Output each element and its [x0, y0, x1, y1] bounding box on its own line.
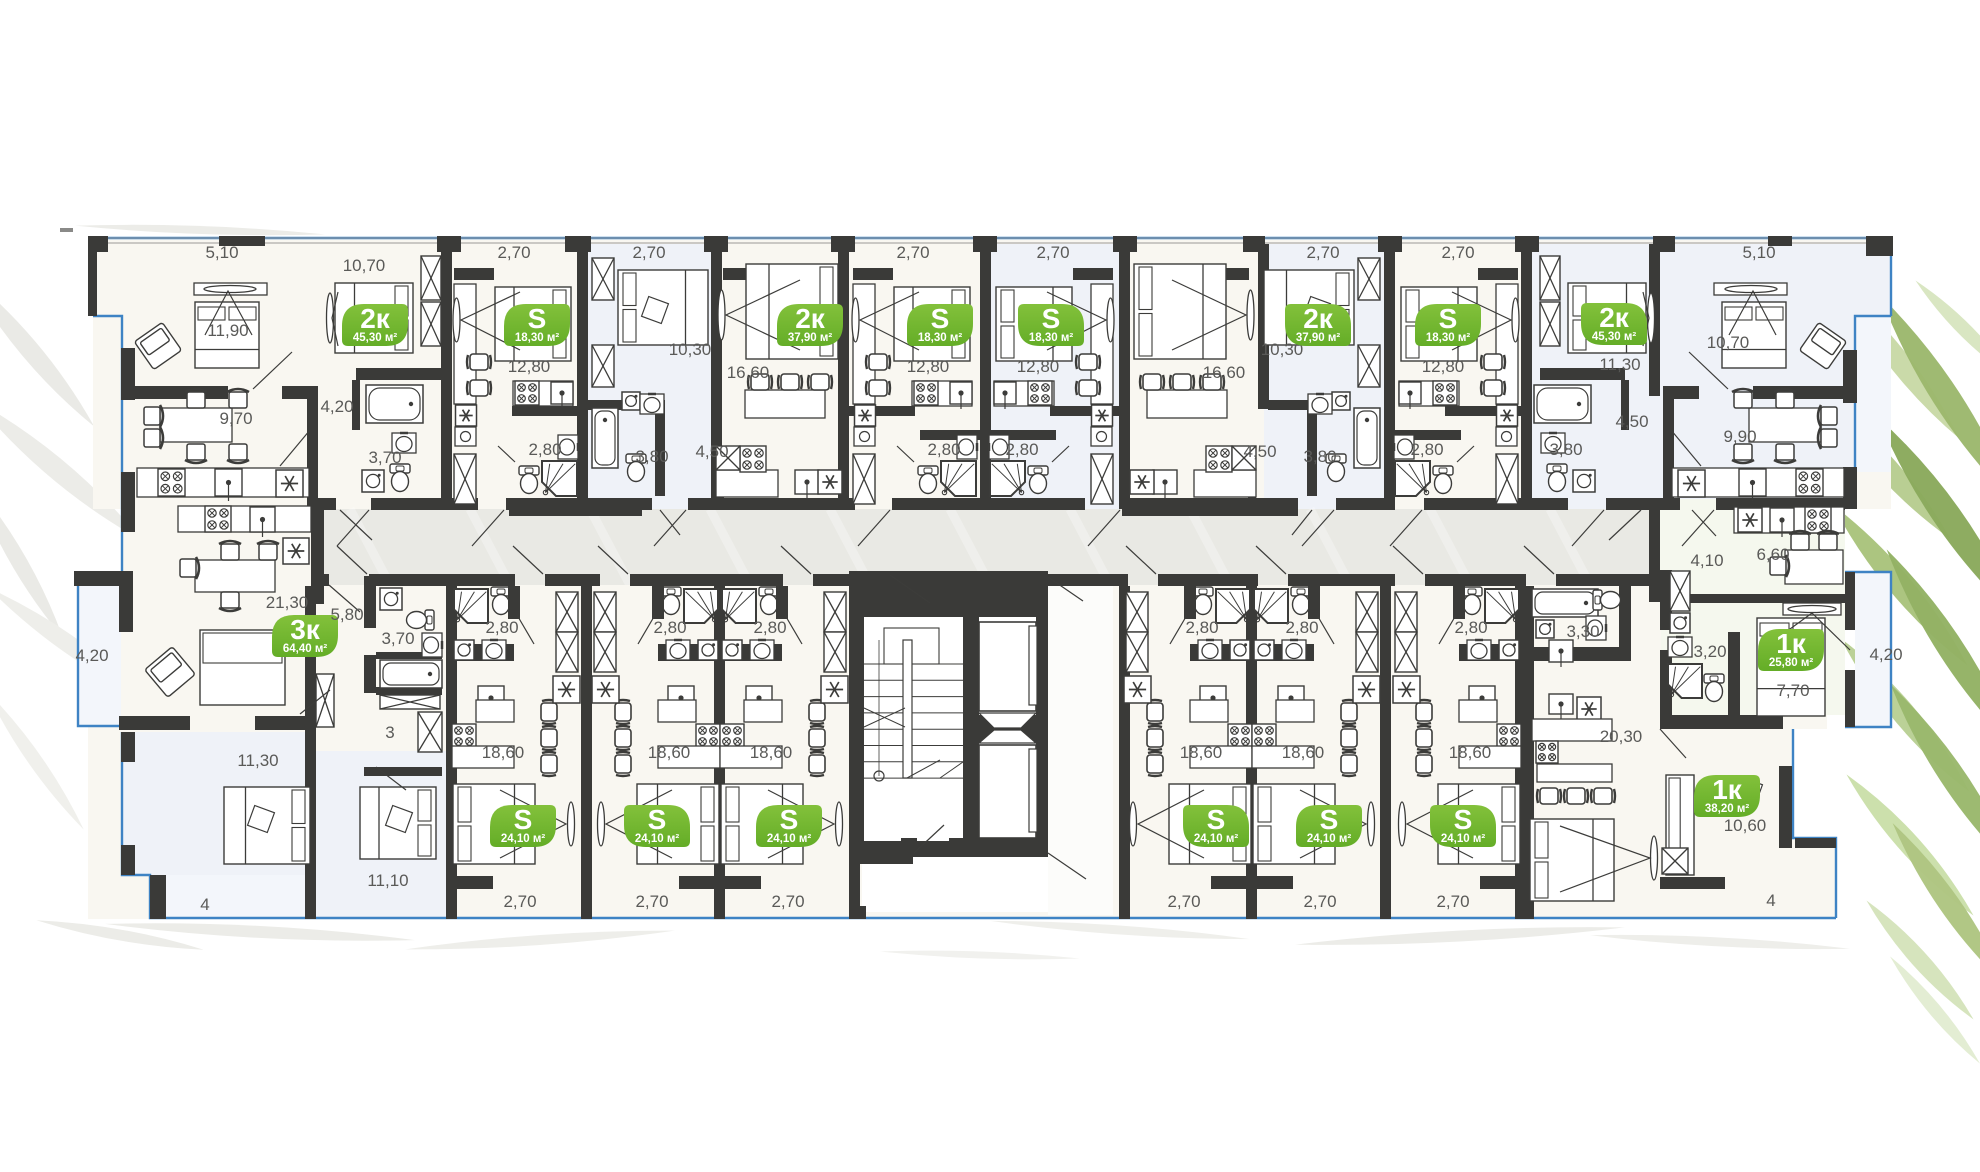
svg-text:2,70: 2,70 — [1167, 892, 1200, 911]
svg-text:4,10: 4,10 — [1690, 551, 1723, 570]
svg-text:12,80: 12,80 — [907, 357, 950, 376]
svg-text:11,10: 11,10 — [367, 871, 408, 890]
svg-text:2,70: 2,70 — [896, 243, 929, 262]
svg-text:10,60: 10,60 — [1724, 816, 1767, 835]
svg-text:12,80: 12,80 — [1422, 357, 1465, 376]
svg-text:2,80: 2,80 — [653, 618, 686, 637]
svg-text:37,90 м²: 37,90 м² — [1296, 332, 1340, 344]
svg-text:18,30 м²: 18,30 м² — [1029, 332, 1073, 344]
svg-text:2,80: 2,80 — [1005, 440, 1038, 459]
svg-text:2,70: 2,70 — [1441, 243, 1474, 262]
svg-text:24,10 м²: 24,10 м² — [1307, 833, 1351, 845]
svg-text:4,20: 4,20 — [75, 646, 108, 665]
svg-text:21,30: 21,30 — [266, 593, 309, 612]
svg-text:2,70: 2,70 — [503, 892, 536, 911]
svg-text:6,60: 6,60 — [1756, 545, 1789, 564]
svg-text:2,80: 2,80 — [1410, 440, 1443, 459]
svg-text:24,10 м²: 24,10 м² — [635, 833, 679, 845]
svg-text:45,30 м²: 45,30 м² — [1592, 331, 1636, 343]
svg-text:S: S — [528, 303, 547, 334]
svg-text:11,90: 11,90 — [207, 321, 248, 340]
svg-text:64,40 м²: 64,40 м² — [283, 643, 327, 655]
svg-text:3: 3 — [385, 723, 394, 742]
svg-text:3к: 3к — [290, 614, 321, 645]
svg-text:3,20: 3,20 — [1693, 642, 1726, 661]
svg-text:4: 4 — [200, 895, 209, 914]
svg-text:37,90 м²: 37,90 м² — [788, 332, 832, 344]
svg-text:2,80: 2,80 — [1185, 618, 1218, 637]
svg-text:18,60: 18,60 — [1180, 743, 1223, 762]
svg-text:2к: 2к — [795, 303, 826, 334]
svg-text:24,10 м²: 24,10 м² — [501, 833, 545, 845]
svg-text:4,20: 4,20 — [320, 397, 353, 416]
svg-text:S: S — [1320, 804, 1339, 835]
svg-text:38,20 м²: 38,20 м² — [1705, 803, 1749, 815]
svg-text:S: S — [1207, 804, 1226, 835]
svg-text:18,60: 18,60 — [648, 743, 691, 762]
svg-text:12,80: 12,80 — [508, 357, 551, 376]
svg-text:4,50: 4,50 — [1615, 412, 1648, 431]
svg-text:S: S — [514, 804, 533, 835]
svg-text:2,70: 2,70 — [497, 243, 530, 262]
svg-text:2,70: 2,70 — [1303, 892, 1336, 911]
svg-text:S: S — [931, 303, 950, 334]
svg-text:2к: 2к — [1599, 302, 1630, 333]
svg-text:24,10 м²: 24,10 м² — [1441, 833, 1485, 845]
svg-text:3,70: 3,70 — [368, 448, 401, 467]
svg-text:3,80: 3,80 — [1303, 447, 1336, 466]
svg-text:3,80: 3,80 — [1549, 440, 1582, 459]
svg-text:12,80: 12,80 — [1017, 357, 1060, 376]
svg-text:2,70: 2,70 — [1036, 243, 1069, 262]
svg-text:2,70: 2,70 — [632, 243, 665, 262]
svg-text:3,70: 3,70 — [381, 629, 414, 648]
svg-text:45,30 м²: 45,30 м² — [353, 332, 397, 344]
svg-text:2к: 2к — [360, 303, 391, 334]
svg-text:S: S — [648, 804, 667, 835]
svg-text:2,80: 2,80 — [528, 440, 561, 459]
svg-text:11,30: 11,30 — [1599, 355, 1640, 374]
svg-text:18,60: 18,60 — [750, 743, 793, 762]
svg-text:10,70: 10,70 — [1707, 333, 1750, 352]
svg-text:1к: 1к — [1776, 628, 1807, 659]
svg-text:11,30: 11,30 — [237, 751, 278, 770]
svg-text:2,70: 2,70 — [1436, 892, 1469, 911]
svg-text:3,30: 3,30 — [1566, 622, 1599, 641]
svg-text:2,80: 2,80 — [927, 440, 960, 459]
svg-text:18,60: 18,60 — [1282, 743, 1325, 762]
svg-text:2,80: 2,80 — [753, 618, 786, 637]
svg-text:1к: 1к — [1712, 774, 1743, 805]
svg-text:18,30 м²: 18,30 м² — [918, 332, 962, 344]
svg-text:S: S — [1454, 804, 1473, 835]
svg-text:24,10 м²: 24,10 м² — [767, 833, 811, 845]
svg-text:9,70: 9,70 — [219, 409, 252, 428]
svg-text:4,50: 4,50 — [1243, 442, 1276, 461]
svg-text:4,50: 4,50 — [695, 442, 728, 461]
svg-text:16,60: 16,60 — [1203, 363, 1246, 382]
svg-text:5,10: 5,10 — [1742, 243, 1775, 262]
svg-text:3,80: 3,80 — [635, 447, 668, 466]
svg-text:10,30: 10,30 — [669, 340, 712, 359]
svg-text:2,70: 2,70 — [635, 892, 668, 911]
svg-text:4: 4 — [1766, 891, 1775, 910]
svg-text:2,80: 2,80 — [485, 618, 518, 637]
svg-text:S: S — [1042, 303, 1061, 334]
svg-text:2,70: 2,70 — [771, 892, 804, 911]
svg-text:2,80: 2,80 — [1285, 618, 1318, 637]
svg-text:4,20: 4,20 — [1869, 645, 1902, 664]
svg-text:25,80 м²: 25,80 м² — [1769, 657, 1813, 669]
svg-text:S: S — [1439, 303, 1458, 334]
svg-text:2,70: 2,70 — [1306, 243, 1339, 262]
svg-text:5,80: 5,80 — [330, 605, 363, 624]
svg-text:18,30 м²: 18,30 м² — [1426, 332, 1470, 344]
svg-text:S: S — [780, 804, 799, 835]
svg-text:9,90: 9,90 — [1723, 427, 1756, 446]
svg-text:20,30: 20,30 — [1600, 727, 1643, 746]
svg-text:2к: 2к — [1303, 303, 1334, 334]
svg-text:18,60: 18,60 — [482, 743, 525, 762]
svg-text:24,10 м²: 24,10 м² — [1194, 833, 1238, 845]
svg-text:5,10: 5,10 — [205, 243, 238, 262]
svg-text:10,70: 10,70 — [343, 256, 386, 275]
svg-text:16,60: 16,60 — [727, 363, 770, 382]
svg-text:18,60: 18,60 — [1449, 743, 1492, 762]
svg-text:18,30 м²: 18,30 м² — [515, 332, 559, 344]
svg-text:2,80: 2,80 — [1454, 618, 1487, 637]
svg-text:7,70: 7,70 — [1776, 681, 1809, 700]
